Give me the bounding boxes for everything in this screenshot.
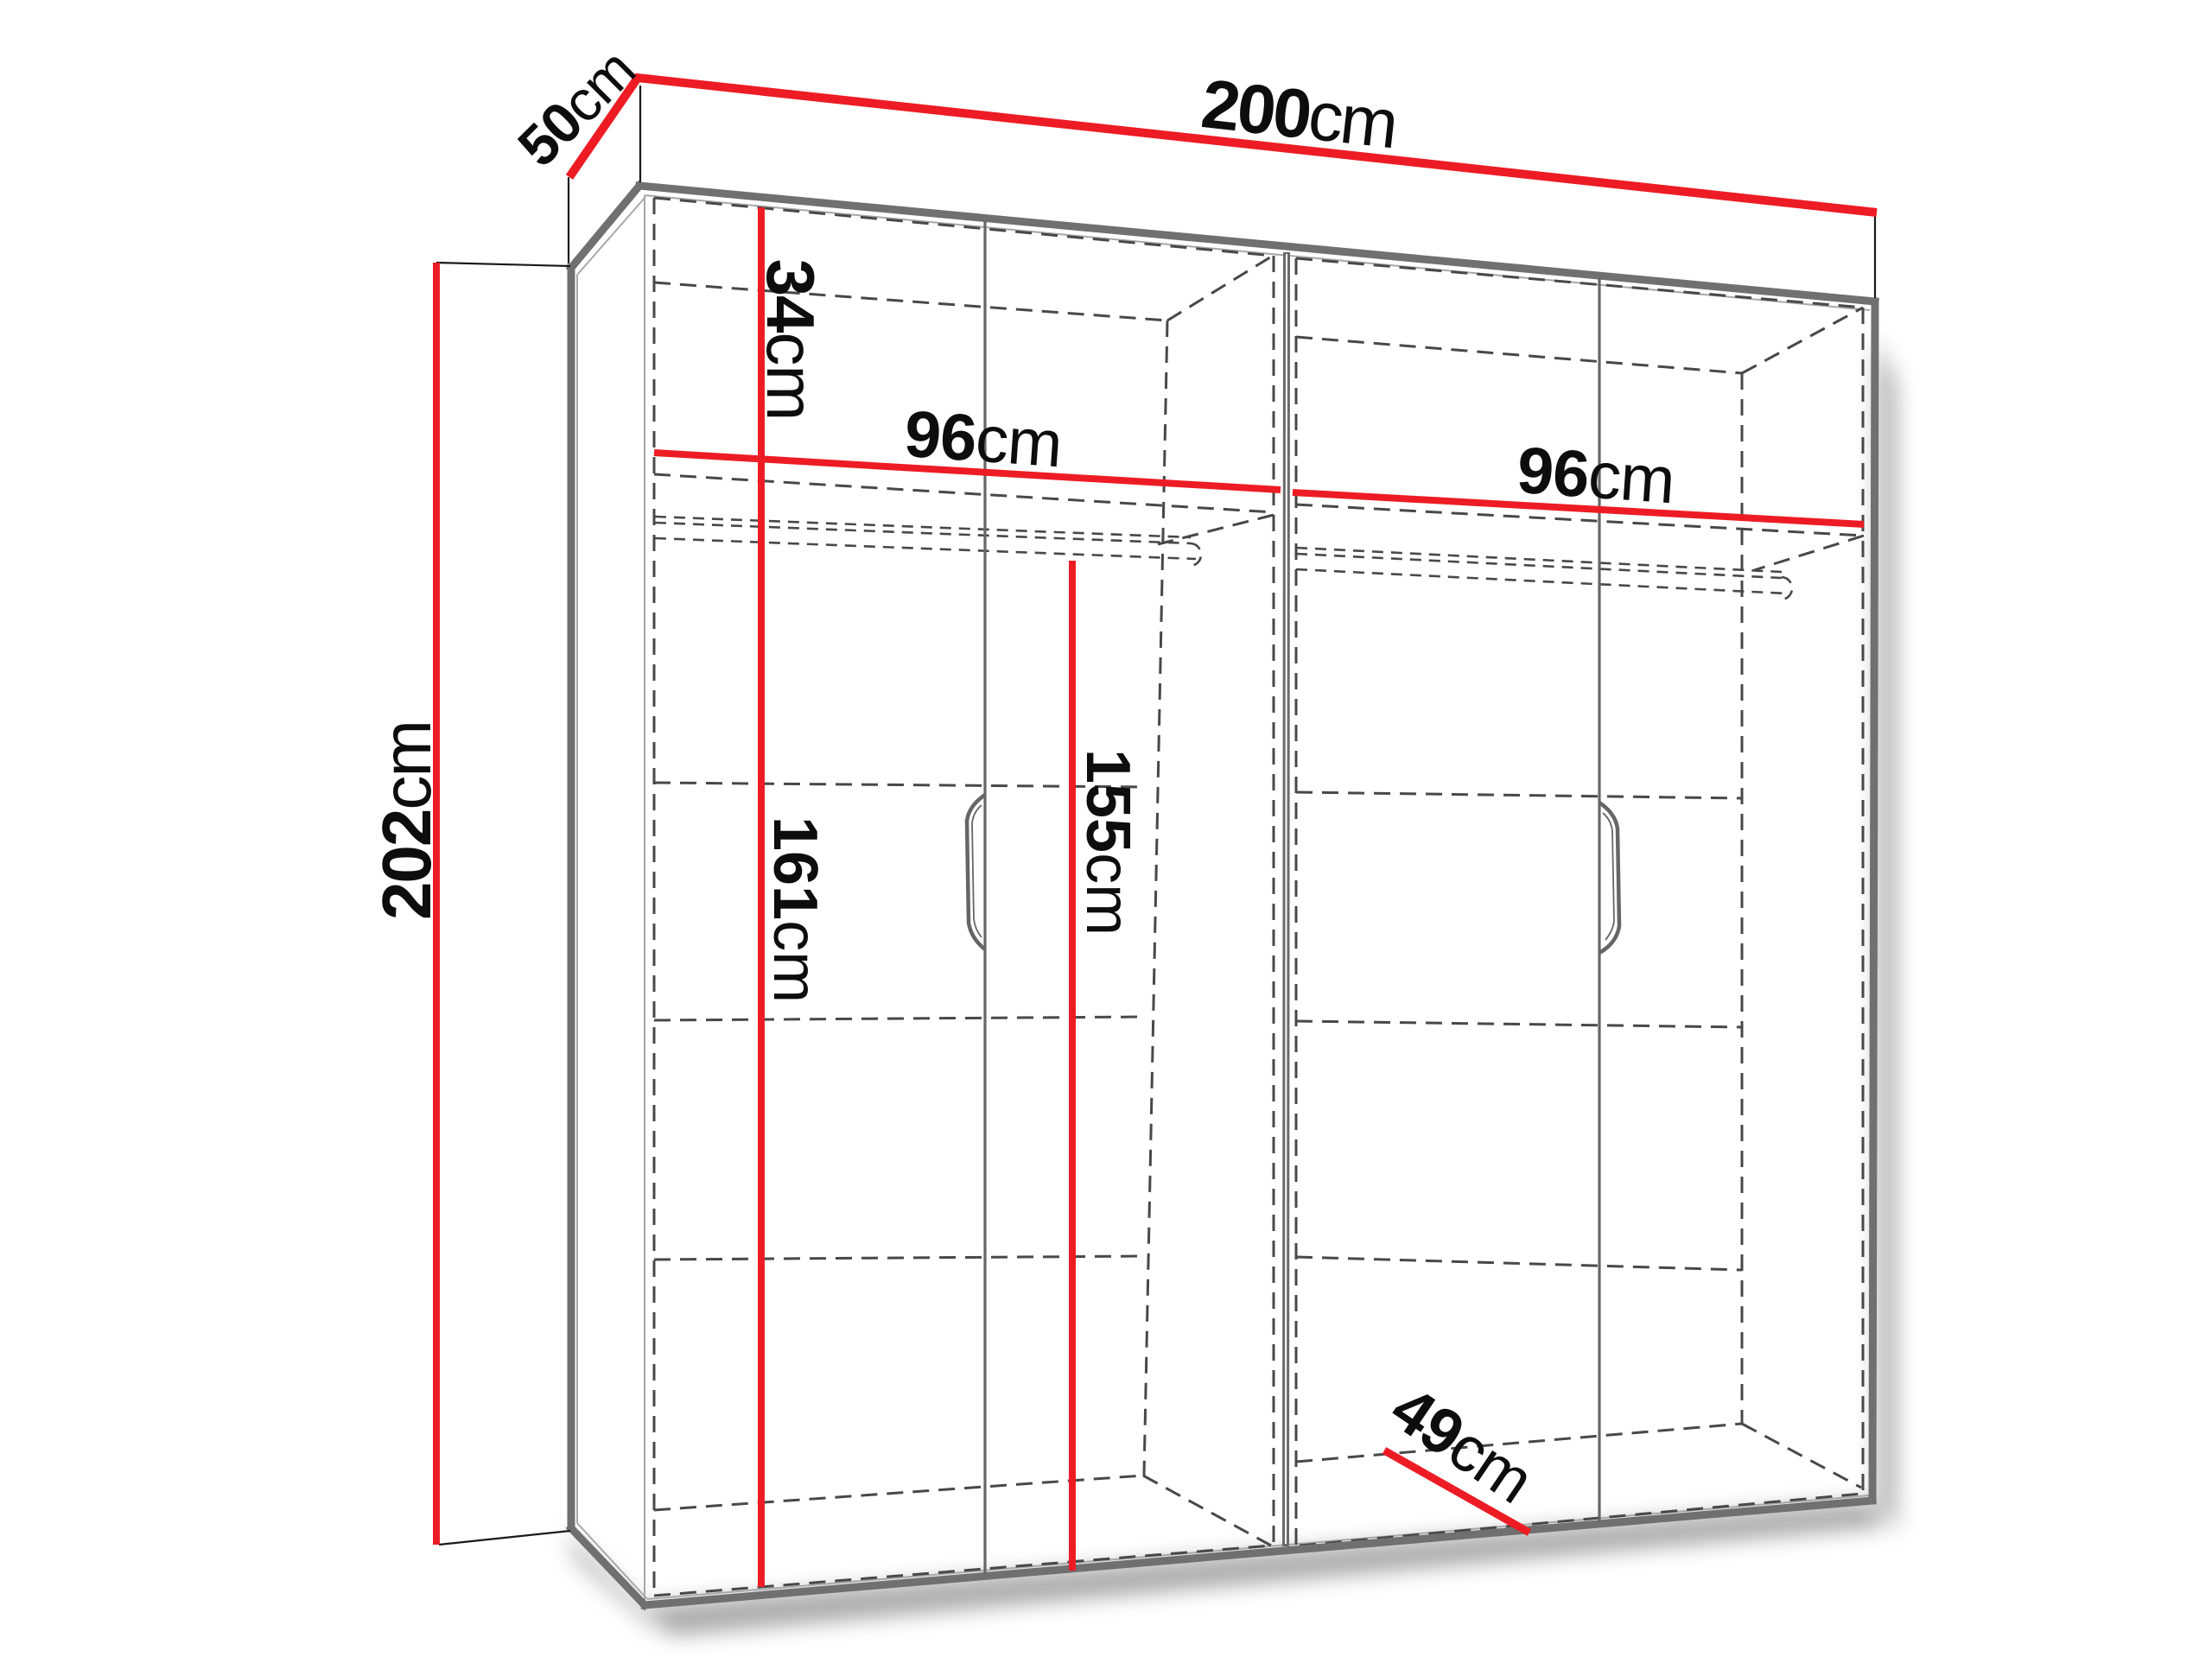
svg-text:96cm: 96cm xyxy=(1515,434,1676,517)
svg-text:155cm: 155cm xyxy=(1073,749,1142,936)
svg-text:34cm: 34cm xyxy=(753,259,829,421)
svg-text:161cm: 161cm xyxy=(760,816,829,1003)
svg-text:96cm: 96cm xyxy=(902,397,1064,481)
svg-text:202cm: 202cm xyxy=(368,721,445,920)
